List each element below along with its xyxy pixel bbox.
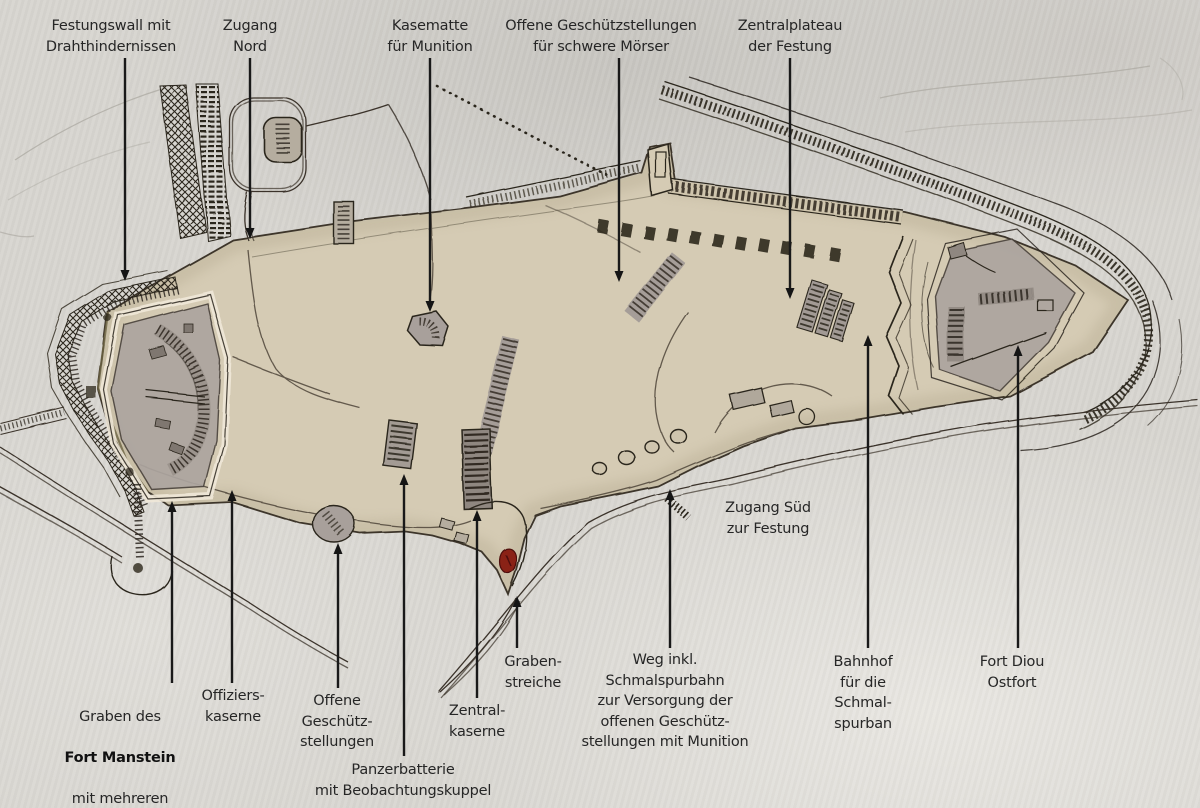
label-zugang-sued: Zugang Süd zur Festung [725, 498, 811, 539]
label-bahnhof: Bahnhof für die Schmal- spurban [834, 652, 893, 734]
label-festungswall: Festungswall mit Drahthindernissen [46, 16, 176, 57]
dotted-line [437, 86, 612, 178]
label-panzerbatterie: Panzerbatterie mit Beobachtungskuppel [315, 760, 491, 801]
label-grabenstreiche: Graben- streiche [504, 652, 561, 693]
label-kasematte: Kasematte für Munition [387, 16, 472, 57]
label-graben-fort-manstein: Graben des Fort Manstein mit mehreren Gr… [61, 686, 179, 808]
label-offene-geschuetz: Offene Geschütz- stellungen [300, 691, 374, 753]
grabenstreiche-marker [500, 549, 517, 573]
gun-position-oval [313, 506, 355, 542]
label-zentralkaserne: Zentral- kaserne [449, 701, 505, 742]
label-weg-schmalspurbahn: Weg inkl. Schmalspurbahn zur Versorgung … [581, 650, 748, 753]
fortress-map-page: Festungswall mit Drahthindernissen Zugan… [0, 0, 1200, 808]
label-offene-geschuetz-moerser: Offene Geschützstellungen für schwere Mö… [505, 16, 697, 57]
panzerbatterie-building [383, 420, 416, 469]
label-zentralplateau: Zentralplateau der Festung [738, 16, 843, 57]
label-zugang-nord: Zugang Nord [223, 16, 277, 57]
label-offizierskaserne: Offiziers- kaserne [202, 686, 265, 727]
label-fort-diou: Fort Diou Ostfort [980, 652, 1044, 693]
label-graben-line2-bold: Fort Manstein [61, 748, 179, 769]
label-graben-line1: Graben des [61, 707, 179, 728]
zentralkaserne-building [461, 428, 492, 509]
label-graben-line3: mit mehreren Grabenstreichen [61, 789, 179, 808]
